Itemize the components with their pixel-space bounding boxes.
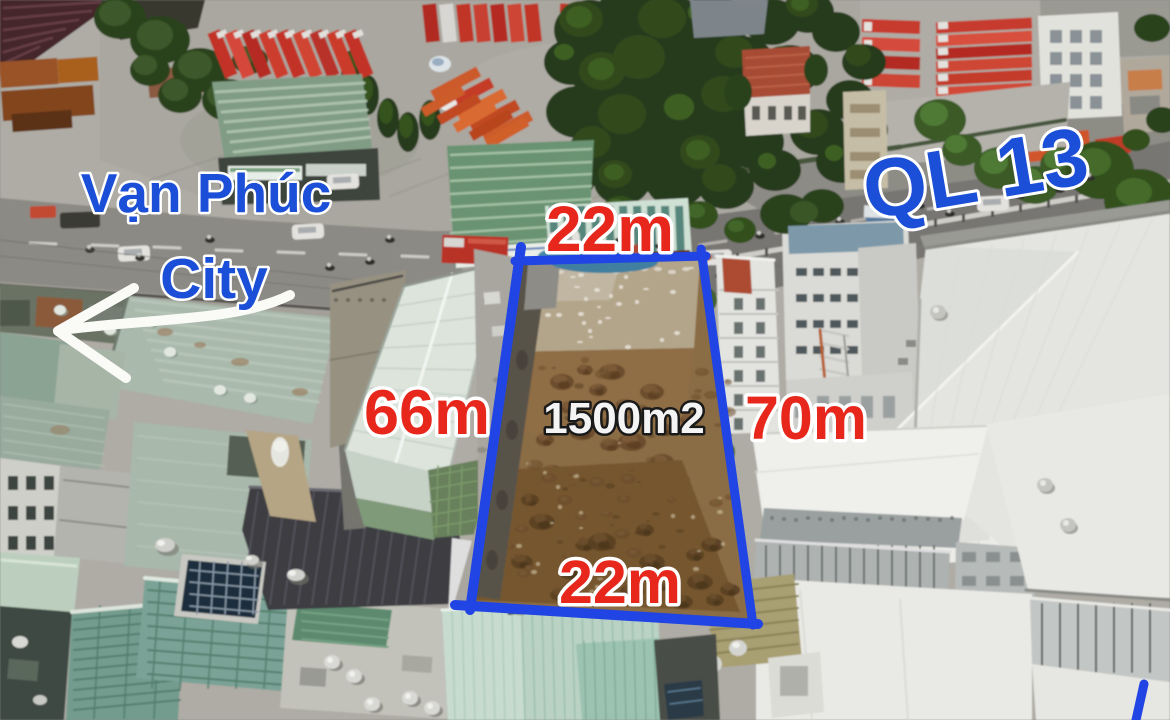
svg-text:66m: 66m — [364, 378, 490, 448]
svg-text:Vạn Phúc: Vạn Phúc — [81, 162, 332, 224]
svg-text:70m: 70m — [745, 384, 867, 452]
svg-text:22m: 22m — [546, 193, 674, 265]
svg-text:1500m2: 1500m2 — [543, 394, 704, 443]
svg-text:22m: 22m — [559, 548, 681, 616]
svg-text:City: City — [160, 247, 268, 311]
